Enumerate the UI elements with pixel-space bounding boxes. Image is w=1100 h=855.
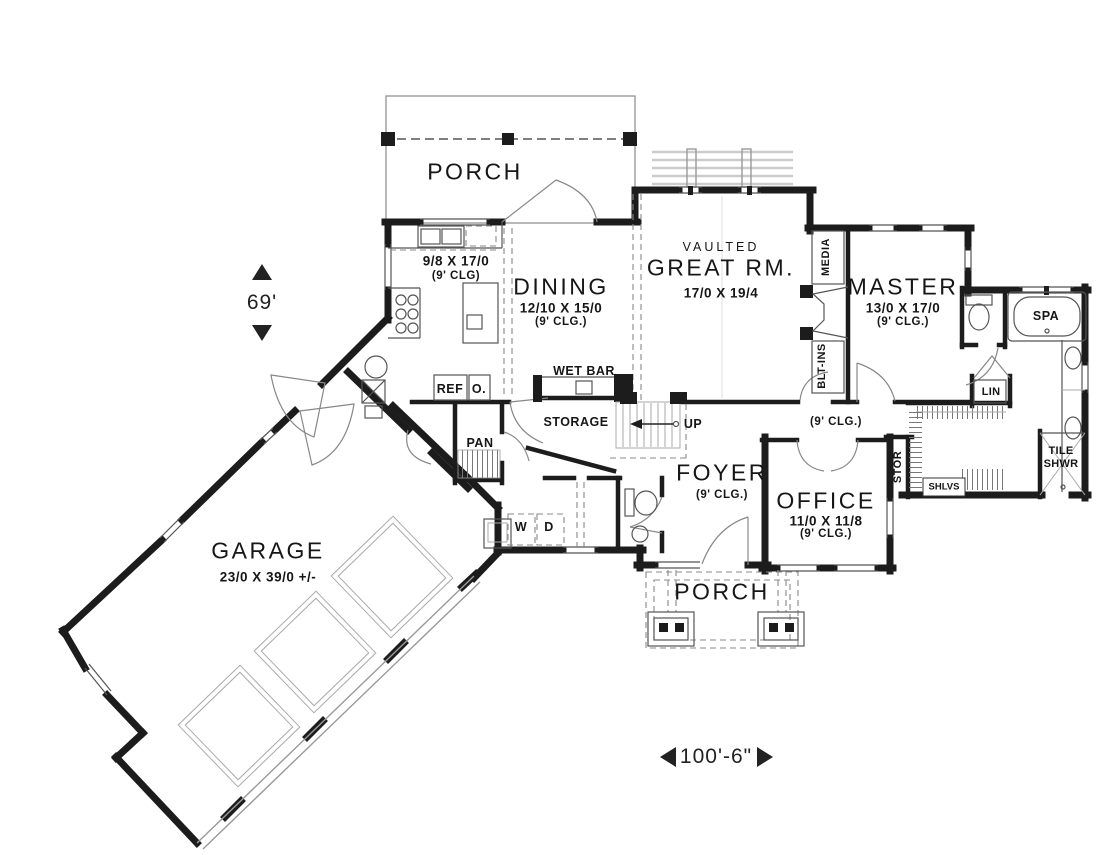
dining-dims: 12/10 X 15/0 — [520, 301, 603, 316]
dim-arrow-down-icon — [252, 325, 272, 341]
dim-arrow-up-icon — [252, 264, 272, 280]
office-ceiling: (9' CLG.) — [800, 528, 852, 540]
refrigerator-label: REF — [437, 382, 464, 396]
room-label-porch-top: PORCH — [427, 159, 523, 186]
porch-piers — [648, 612, 804, 646]
floor-plan: PORCH 9/8 X 17/0 (9' CLG) DINING 12/10 X… — [0, 0, 1100, 855]
room-label-porch-bottom: PORCH — [674, 579, 770, 606]
master-dims: 13/0 X 17/0 — [866, 301, 941, 316]
room-label-dining: DINING — [513, 274, 609, 301]
powder-room-fixtures — [625, 489, 657, 542]
windows — [85, 186, 1088, 695]
room-label-foyer: FOYER — [676, 460, 768, 487]
garage-bay — [178, 665, 300, 787]
plan-depth-dimension: 69' — [247, 291, 277, 315]
pantry-label: PAN — [467, 436, 494, 450]
wet-bar-label: WET BAR — [553, 364, 615, 378]
kitchen-dims: 9/8 X 17/0 — [423, 254, 490, 269]
room-label-garage: GARAGE — [211, 538, 324, 565]
vanity-sink — [1065, 347, 1081, 369]
cooktop — [388, 288, 420, 338]
vanity-sink — [1065, 417, 1081, 439]
rear-deck-steps — [652, 149, 793, 187]
pier — [648, 612, 694, 646]
storage-closet-label: STOR — [892, 451, 904, 483]
room-label-master: MASTER — [848, 274, 959, 301]
stairs-up-arrow — [630, 419, 642, 429]
great-room-dims: 17/0 X 19/4 — [684, 286, 759, 301]
tile-shower-label-2: SHWR — [1044, 458, 1079, 470]
great-room-prefix: VAULTED — [683, 240, 760, 254]
pantry-shelves — [458, 450, 500, 478]
tile-shower-label-1: TILE — [1048, 445, 1073, 457]
kitchen-island — [463, 283, 498, 343]
garage-dims: 23/0 X 39/0 +/- — [220, 570, 316, 585]
dim-arrow-right-icon — [757, 747, 773, 767]
garage-bay — [254, 591, 376, 713]
dryer-label: D — [544, 520, 554, 534]
fireplace — [800, 285, 848, 340]
dim-arrow-left-icon — [660, 747, 676, 767]
media-label: MEDIA — [820, 238, 832, 276]
linen-label: LIN — [982, 386, 1001, 398]
room-label-office: OFFICE — [776, 488, 875, 515]
pier — [758, 612, 804, 646]
dining-ceiling: (9' CLG.) — [535, 316, 587, 328]
foyer-ceiling: (9' CLG.) — [696, 489, 748, 501]
stairs-up-label: UP — [684, 417, 702, 431]
kitchen-sink — [418, 226, 464, 247]
water-heater — [365, 356, 387, 378]
stairs — [616, 392, 687, 448]
washer-label: W — [515, 520, 527, 534]
built-ins-label: BLT-INS — [816, 343, 828, 388]
room-label-great-room: GREAT RM. — [647, 255, 795, 282]
bath-toilet — [966, 295, 992, 330]
master-ceiling: (9' CLG.) — [877, 316, 929, 328]
plan-width-dimension: 100'-6" — [680, 745, 752, 769]
spa-label: SPA — [1033, 309, 1059, 323]
garage-bay — [331, 516, 453, 638]
storage-label: STORAGE — [543, 415, 608, 429]
hall-ceiling: (9' CLG.) — [810, 416, 862, 428]
oven-label: O. — [472, 382, 486, 396]
office-dims: 11/0 X 11/8 — [789, 514, 862, 529]
kitchen-ceiling: (9' CLG) — [432, 270, 480, 282]
garage-bays — [178, 516, 480, 849]
powder-toilet — [625, 489, 657, 516]
shelves-label: SHLVS — [929, 482, 960, 493]
